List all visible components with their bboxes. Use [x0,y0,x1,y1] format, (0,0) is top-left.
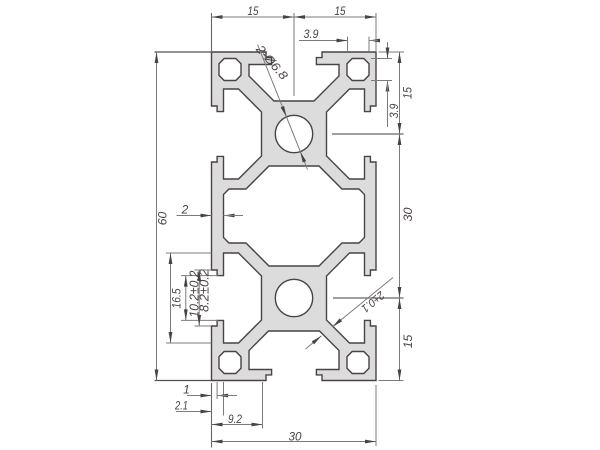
svg-text:60: 60 [156,211,170,225]
svg-text:2±0.1: 2±0.1 [359,288,387,314]
svg-text:30: 30 [401,207,415,221]
svg-text:3.9: 3.9 [387,103,401,118]
svg-text:15: 15 [248,4,259,18]
svg-text:15: 15 [401,87,415,99]
svg-text:15: 15 [401,334,415,348]
svg-text:9.2: 9.2 [228,412,242,426]
svg-text:16.5: 16.5 [170,288,184,308]
svg-text:10.2±0.2: 10.2±0.2 [188,270,202,317]
svg-text:3.9: 3.9 [304,27,319,41]
svg-text:15: 15 [335,4,346,18]
svg-text:2.1: 2.1 [174,399,188,413]
svg-text:2: 2 [181,203,189,217]
svg-text:1: 1 [183,383,190,397]
svg-text:30: 30 [289,430,302,444]
